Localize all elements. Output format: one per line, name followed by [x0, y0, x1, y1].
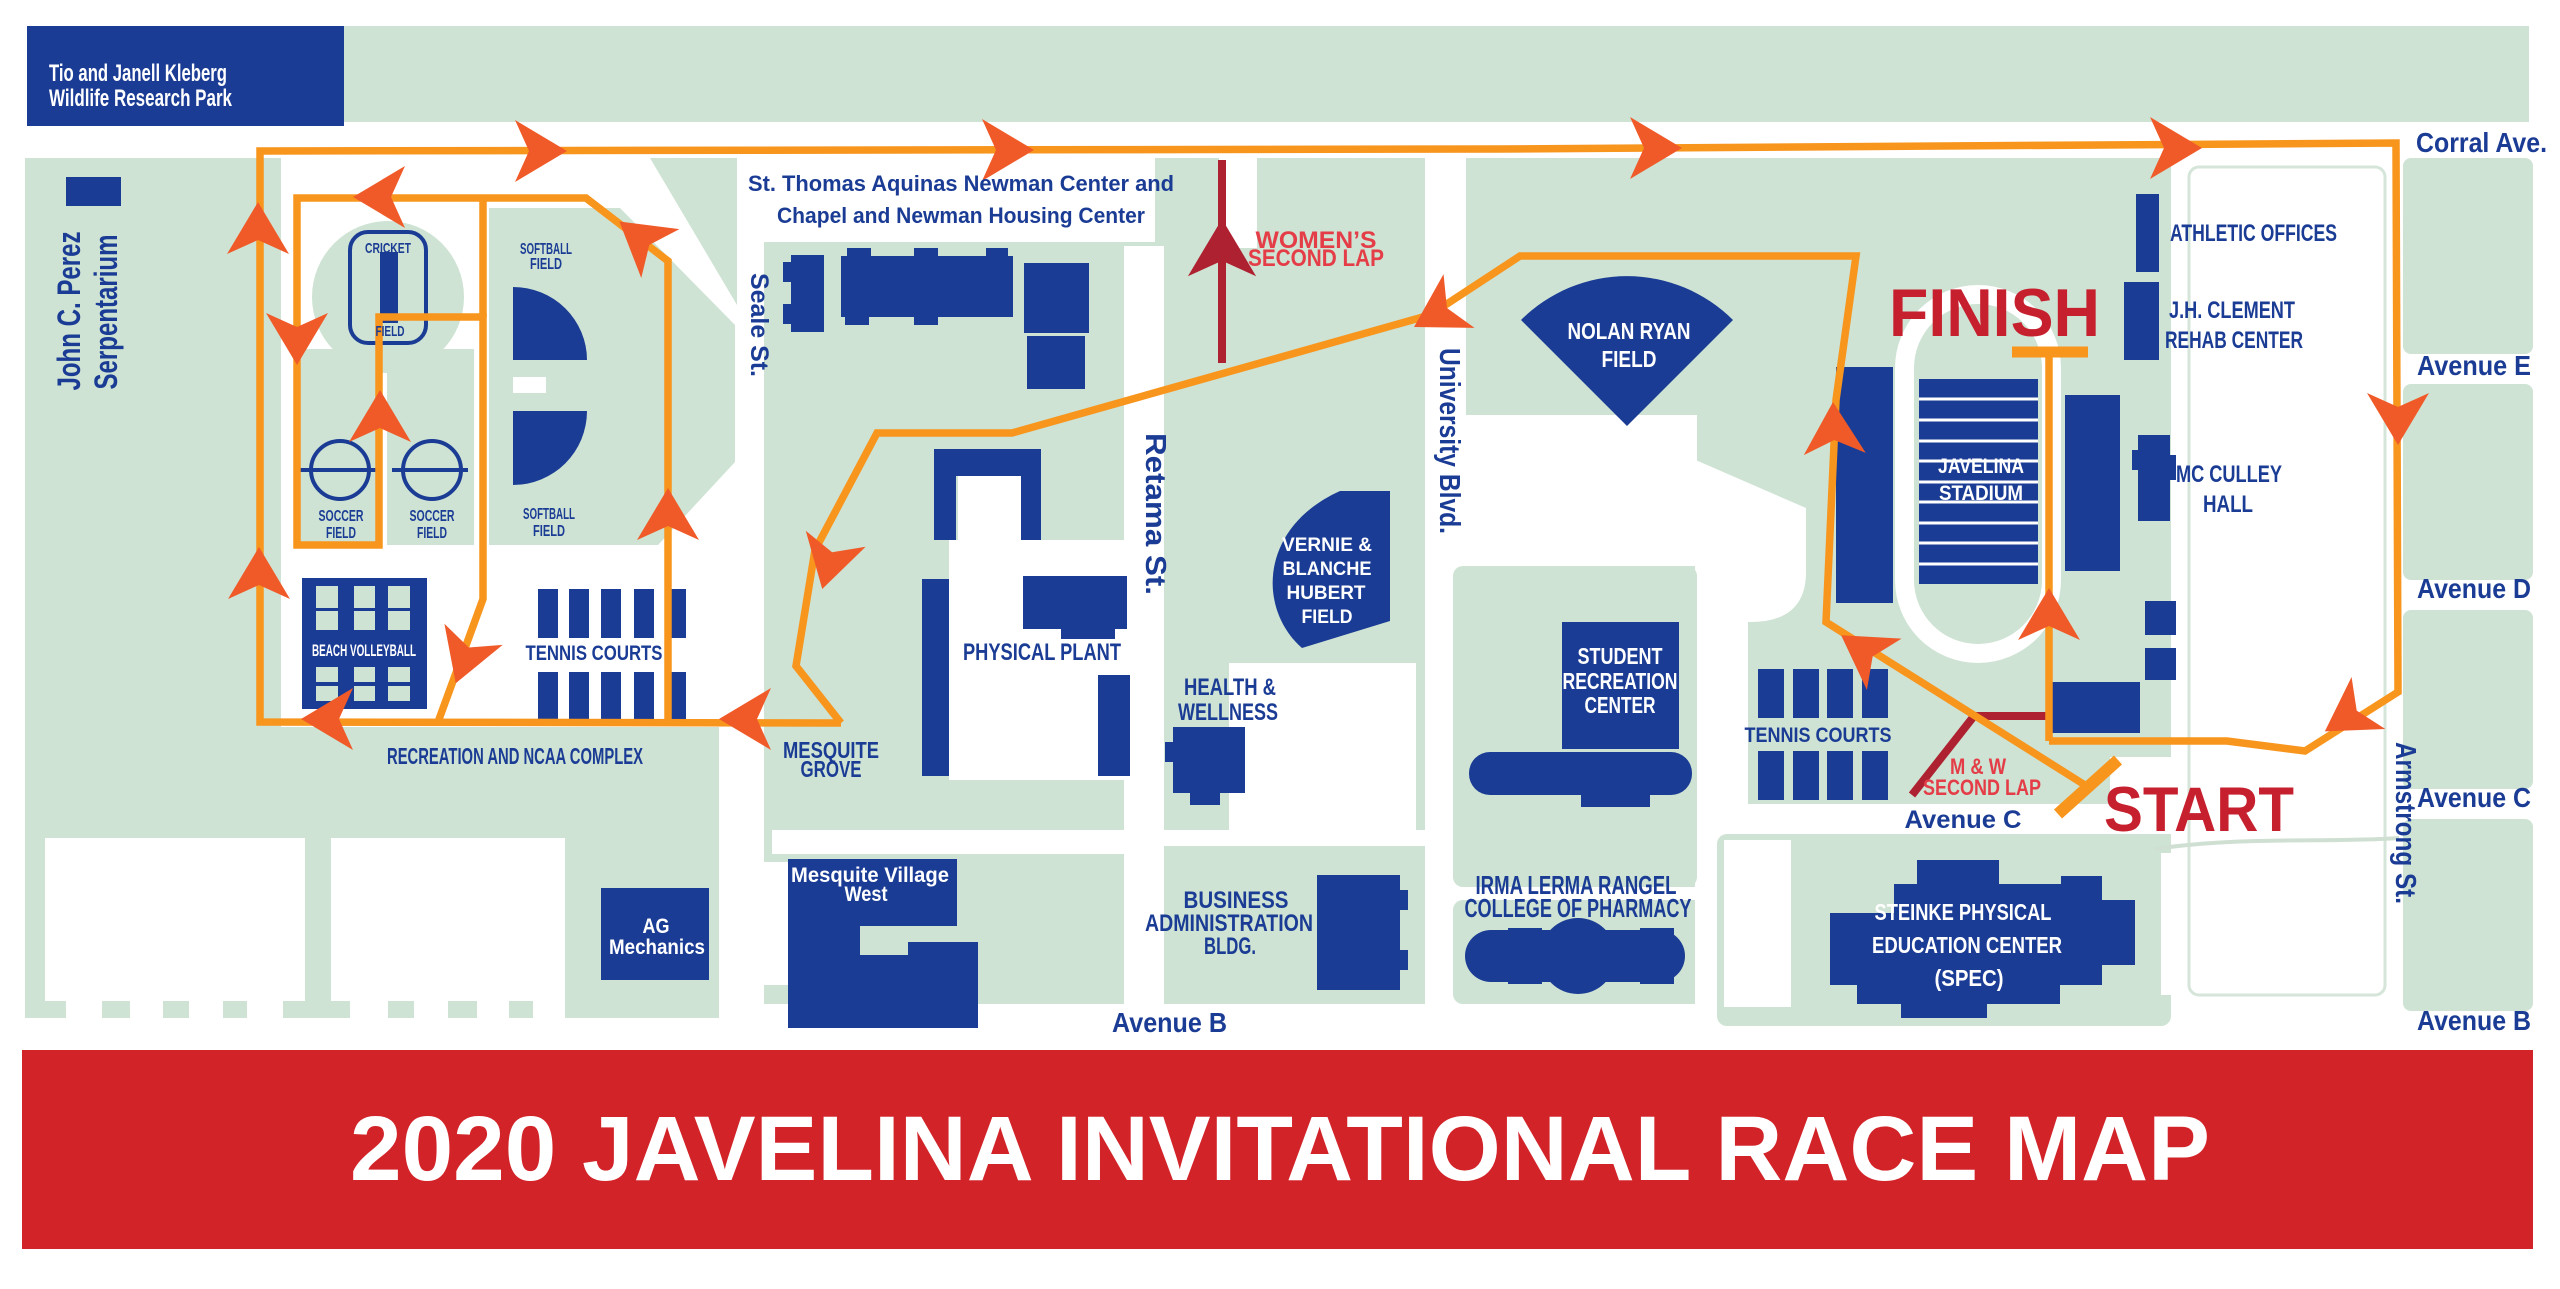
svg-text:STUDENT: STUDENT: [1578, 643, 1663, 669]
svg-text:FIELD: FIELD: [1302, 607, 1353, 628]
svg-text:CENTER: CENTER: [1585, 692, 1656, 718]
svg-text:REHAB CENTER: REHAB CENTER: [2165, 327, 2303, 354]
svg-text:2020 JAVELINA INVITATIONAL RAC: 2020 JAVELINA INVITATIONAL RACE MAP: [350, 1098, 2210, 1200]
svg-text:Wildlife Research Park: Wildlife Research Park: [49, 85, 232, 112]
svg-text:STADIUM: STADIUM: [1939, 482, 2023, 505]
svg-text:FIELD: FIELD: [530, 256, 562, 273]
svg-text:EDUCATION CENTER: EDUCATION CENTER: [1872, 932, 2062, 958]
svg-text:CRICKET: CRICKET: [365, 240, 411, 257]
svg-text:RECREATION: RECREATION: [1563, 668, 1678, 694]
svg-text:PHYSICAL PLANT: PHYSICAL PLANT: [963, 639, 1121, 666]
svg-text:STEINKE PHYSICAL: STEINKE PHYSICAL: [1875, 899, 2052, 925]
svg-text:Tio and Janell Kleberg: Tio and Janell Kleberg: [49, 60, 227, 87]
svg-text:Chapel and Newman Housing Cent: Chapel and Newman Housing Center: [777, 203, 1145, 228]
svg-text:SECOND LAP: SECOND LAP: [1248, 245, 1384, 272]
svg-text:Avenue B: Avenue B: [2417, 1005, 2531, 1036]
svg-text:John C. Perez: John C. Perez: [51, 232, 87, 391]
svg-text:HEALTH &: HEALTH &: [1184, 674, 1276, 701]
svg-text:START: START: [2104, 775, 2294, 845]
svg-text:SECOND LAP: SECOND LAP: [1923, 775, 2041, 800]
svg-text:SOCCER: SOCCER: [410, 508, 455, 525]
svg-text:Avenue B: Avenue B: [1112, 1007, 1227, 1038]
svg-text:MC CULLEY: MC CULLEY: [2176, 461, 2282, 488]
svg-text:FIELD: FIELD: [376, 323, 405, 340]
svg-text:Corral Ave.: Corral Ave.: [2416, 127, 2547, 158]
svg-text:BEACH VOLLEYBALL: BEACH VOLLEYBALL: [312, 641, 416, 660]
svg-text:JAVELINA: JAVELINA: [1938, 455, 2024, 478]
svg-text:Seale St.: Seale St.: [745, 273, 773, 377]
svg-text:FIELD: FIELD: [417, 525, 447, 542]
svg-text:Retama St.: Retama St.: [1139, 433, 1171, 595]
svg-text:HUBERT: HUBERT: [1287, 583, 1366, 604]
svg-text:(SPEC): (SPEC): [1935, 965, 2004, 991]
svg-text:BLANCHE: BLANCHE: [1283, 559, 1372, 580]
svg-text:Avenue D: Avenue D: [2417, 573, 2531, 604]
svg-text:University Blvd.: University Blvd.: [1433, 348, 1465, 534]
svg-text:West: West: [845, 883, 888, 906]
svg-text:VERNIE &: VERNIE &: [1282, 535, 1372, 556]
svg-text:TENNIS COURTS: TENNIS COURTS: [526, 642, 663, 665]
svg-text:FINISH: FINISH: [1889, 275, 2100, 351]
svg-text:NOLAN RYAN: NOLAN RYAN: [1568, 318, 1691, 344]
svg-text:Armstrong St.: Armstrong St.: [2389, 742, 2421, 904]
svg-text:TENNIS COURTS: TENNIS COURTS: [1745, 724, 1892, 747]
svg-text:Serpentarium: Serpentarium: [88, 235, 124, 390]
svg-text:FIELD: FIELD: [533, 523, 565, 540]
svg-text:COLLEGE OF PHARMACY: COLLEGE OF PHARMACY: [1465, 893, 1692, 923]
svg-text:St. Thomas Aquinas Newman Cent: St. Thomas Aquinas Newman Center and: [748, 171, 1174, 196]
svg-text:FIELD: FIELD: [326, 525, 356, 542]
svg-text:AG: AG: [643, 915, 670, 938]
svg-text:Avenue C: Avenue C: [1905, 806, 2022, 834]
svg-text:GROVE: GROVE: [801, 756, 862, 782]
svg-text:RECREATION AND NCAA COMPLEX: RECREATION AND NCAA COMPLEX: [387, 743, 643, 769]
svg-text:SOFTBALL: SOFTBALL: [523, 506, 575, 523]
svg-text:ATHLETIC OFFICES: ATHLETIC OFFICES: [2170, 220, 2337, 247]
svg-text:SOCCER: SOCCER: [319, 508, 364, 525]
svg-text:BLDG.: BLDG.: [1204, 933, 1256, 960]
svg-text:J.H. CLEMENT: J.H. CLEMENT: [2169, 297, 2295, 324]
svg-text:Avenue E: Avenue E: [2417, 350, 2531, 381]
svg-text:Avenue C: Avenue C: [2417, 782, 2531, 813]
svg-text:WELLNESS: WELLNESS: [1178, 699, 1278, 726]
svg-text:Mechanics: Mechanics: [609, 936, 705, 959]
svg-text:HALL: HALL: [2203, 491, 2253, 518]
svg-text:FIELD: FIELD: [1602, 346, 1657, 372]
